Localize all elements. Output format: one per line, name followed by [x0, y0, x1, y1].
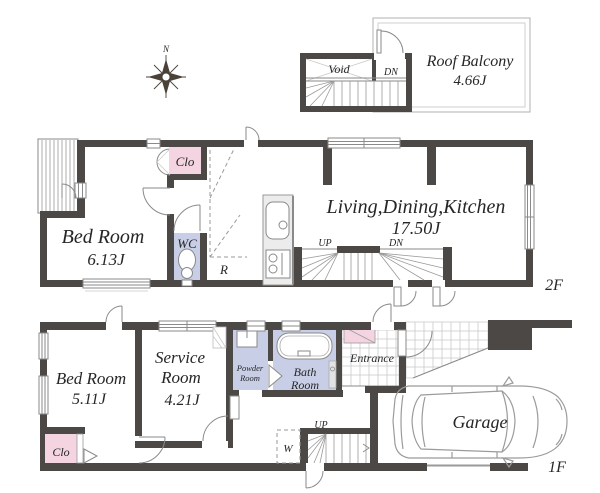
f1-stairs	[308, 434, 369, 463]
f1-service-name-2: Room	[160, 368, 201, 387]
f2-ldk-area: 17.50J	[392, 218, 442, 238]
compass-north-label: N	[162, 44, 170, 54]
compass-rose: N	[146, 44, 186, 98]
shower-panel-icon	[329, 361, 336, 388]
floor-plan-page: Roof Balcony 4.66J	[0, 0, 600, 493]
f2-fridge-space	[210, 149, 247, 257]
f2-stairs-down-label: DN	[388, 238, 404, 249]
kitchen-sink-icon	[266, 202, 289, 239]
f1-bedroom-area: 5.11J	[72, 391, 107, 408]
f1-service-name-1: Service	[155, 348, 205, 367]
f2-fridge-label: R	[219, 262, 228, 277]
f1-bedroom-name: Bed Room	[56, 369, 126, 388]
f1-stairs-up-label: UP	[314, 420, 327, 431]
f2-closet-label: Clo	[176, 154, 195, 169]
f2-balcony	[38, 139, 78, 213]
f2-bedroom-area: 6.13J	[87, 250, 126, 269]
f2-wc-label: WC	[177, 236, 197, 251]
f1-washer-label: W	[283, 443, 293, 455]
f1-entrance-label: Entrance	[349, 351, 395, 365]
roof-balcony-name: Roof Balcony	[426, 53, 515, 70]
closet-folding-door-icon	[84, 449, 97, 463]
f1-bath-label-2: Room	[290, 378, 319, 392]
roof-level: Roof Balcony 4.66J	[300, 18, 530, 112]
f2-kitchen-counter	[263, 195, 293, 285]
f1-powder-label-1: Powder	[236, 363, 264, 373]
stove-icon	[266, 250, 290, 278]
roof-balcony-area: 4.66J	[454, 73, 488, 89]
f1-closet-label: Clo	[52, 445, 69, 459]
floor-plan-canvas: Roof Balcony 4.66J	[0, 0, 600, 493]
f2-stairs	[302, 249, 443, 280]
f1-floor-label: 1F	[548, 459, 566, 476]
f1-powder-label-2: Room	[239, 373, 260, 383]
f2-floor-label: 2F	[545, 277, 563, 294]
roof-down-label: DN	[383, 67, 399, 78]
f1-bath-label-1: Bath	[294, 365, 317, 379]
f2-stairs-up-label: UP	[318, 238, 331, 249]
f1-service-area: 4.21J	[164, 392, 200, 409]
f2-bedroom-name: Bed Room	[62, 226, 145, 248]
f2-ldk-name: Living,Dining,Kitchen	[326, 196, 506, 218]
f1-garage-label: Garage	[453, 412, 508, 432]
floor-1: Bed Room 5.11J Service Room 4.21J Powder…	[39, 304, 572, 488]
floor-2: Clo Bed Room 6.13J WC R Living,Dining,Ki…	[38, 127, 563, 306]
roof-void-label: Void	[328, 62, 350, 76]
